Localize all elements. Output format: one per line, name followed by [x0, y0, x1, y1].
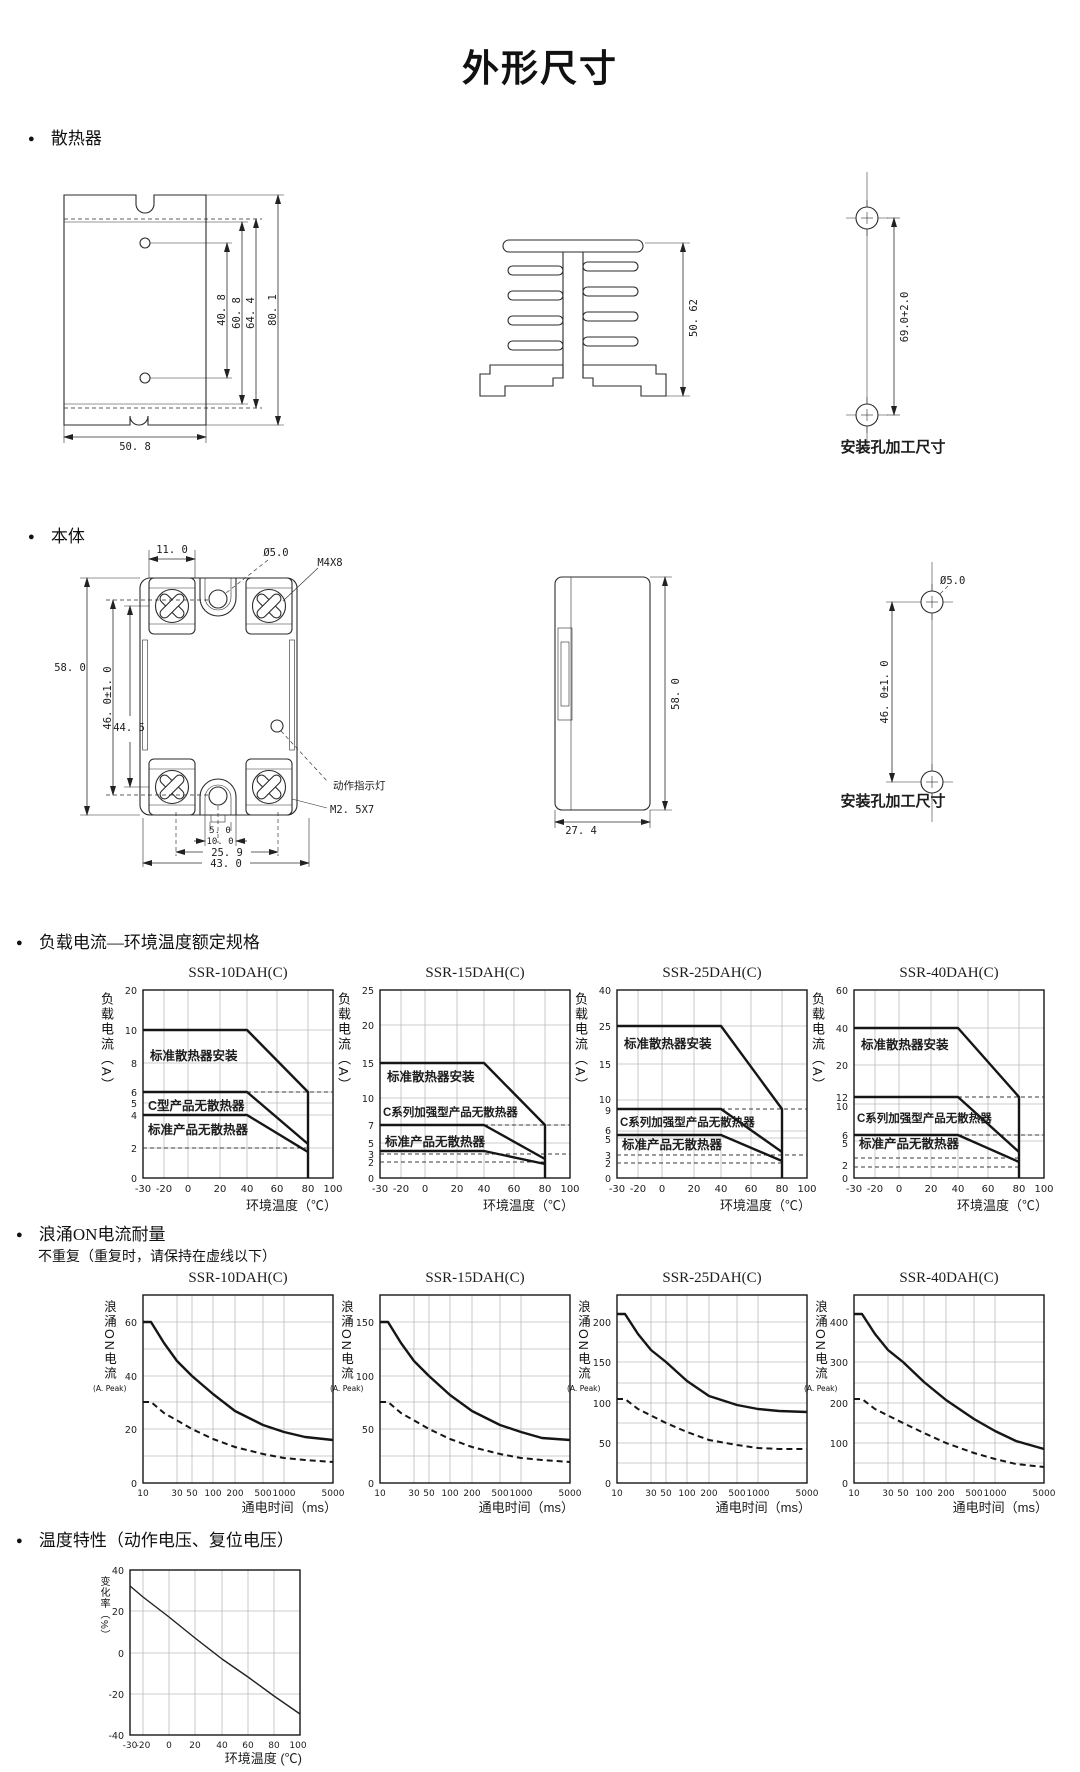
y-tick: 10 — [836, 1102, 848, 1113]
x-tick: 20 — [451, 1184, 464, 1195]
x-tick: 100 — [797, 1184, 816, 1195]
y-tick: 2 — [605, 1159, 611, 1170]
series-label: 标准散热器安装 — [386, 1069, 475, 1084]
surge-chart-ssr-25dah: SSR-25DAH(C) 200 150 100 50 0 10 30 50 1… — [593, 1270, 819, 1515]
y-tick: 25 — [599, 1022, 611, 1033]
series-label: 标准散热器安装 — [623, 1036, 712, 1051]
y-axis-label: 负载电流（A） — [334, 992, 353, 1093]
y-tick: 5 — [131, 1099, 137, 1110]
x-tick: 100 — [323, 1184, 342, 1195]
y-tick: 100 — [356, 1372, 374, 1383]
x-tick: 10 — [848, 1489, 860, 1499]
y-axis-label: 浪涌ON电流 — [337, 1300, 356, 1381]
x-tick: 50 — [186, 1489, 198, 1499]
y-tick: 20 — [125, 1425, 137, 1436]
x-axis-label: 环境温度（℃） — [246, 1198, 337, 1213]
x-tick: 1000 — [273, 1489, 296, 1499]
dim-body-hole-dia: Ø5.0 — [940, 575, 965, 587]
x-tick: -20 — [156, 1184, 172, 1195]
y-tick: 0 — [118, 1649, 124, 1660]
y-axis-label: 负载电流（A） — [97, 992, 116, 1093]
x-tick: 60 — [982, 1184, 995, 1195]
led-indicator — [271, 720, 283, 732]
label-led: 动作指示灯 — [333, 779, 386, 792]
body-holes-caption: 安装孔加工尺寸 — [840, 792, 945, 810]
y-tick: 200 — [593, 1318, 611, 1329]
y-tick: 15 — [362, 1059, 374, 1070]
x-tick: 80 — [776, 1184, 789, 1195]
x-tick: 1000 — [747, 1489, 770, 1499]
y-axis-label: 变化率（%） — [96, 1576, 111, 1641]
y-tick: 50 — [362, 1425, 374, 1436]
x-axis-label: 环境温度 (℃) — [225, 1751, 302, 1766]
y-tick: 10 — [362, 1094, 374, 1105]
x-axis-label: 通电时间（ms） — [242, 1500, 337, 1515]
x-tick: 100 — [678, 1489, 695, 1499]
dim-60-8: 60. 8 — [231, 297, 243, 329]
x-tick: 200 — [463, 1489, 480, 1499]
y-tick: -20 — [108, 1690, 124, 1701]
x-tick: 50 — [660, 1489, 672, 1499]
x-tick: 1000 — [510, 1489, 533, 1499]
y-tick: 5 — [842, 1139, 848, 1150]
x-tick: 20 — [688, 1184, 701, 1195]
section-heading-body: 本体 — [28, 522, 85, 547]
x-tick: 500 — [965, 1489, 982, 1499]
x-tick: 5000 — [1033, 1489, 1056, 1499]
y-tick: 9 — [605, 1106, 611, 1117]
dim-64-4: 64. 4 — [245, 297, 257, 329]
series-label: C系列加强型产品无散热器 — [383, 1105, 518, 1119]
y-tick: 40 — [125, 1372, 137, 1383]
y-tick: 300 — [830, 1358, 848, 1369]
dim-69-0: 69.0+2.0 — [899, 292, 911, 343]
x-tick: 30 — [171, 1489, 183, 1499]
x-tick: 5000 — [322, 1489, 345, 1499]
dim-11-0: 11. 0 — [156, 544, 188, 556]
y-tick: 40 — [599, 986, 611, 997]
chart-title: SSR-10DAH(C) — [188, 1270, 287, 1286]
technical-drawing-layer: 40. 8 60. 8 64. 4 80. 1 50. 8 50. 62 — [0, 0, 1080, 1772]
label-m2-5x7: M2. 5X7 — [330, 804, 374, 816]
chart-title: SSR-40DAH(C) — [899, 965, 998, 981]
x-tick: 30 — [882, 1489, 894, 1499]
x-tick: -30 — [372, 1184, 388, 1195]
body-mounting-holes: Ø5.0 46. 0±1. 0 安装孔加工尺寸 — [840, 562, 965, 822]
y-tick: 20 — [125, 986, 137, 997]
x-tick: 60 — [242, 1741, 254, 1751]
x-tick: 200 — [937, 1489, 954, 1499]
y-axis-unit: (A. Peak) — [93, 1384, 139, 1393]
series-label: 标准产品无散热器 — [621, 1137, 723, 1152]
x-tick: 100 — [1034, 1184, 1053, 1195]
dim-5-0: 5. 0 — [209, 826, 231, 836]
y-tick: 4 — [131, 1111, 137, 1122]
x-tick: 500 — [728, 1489, 745, 1499]
x-tick: -20 — [393, 1184, 409, 1195]
x-tick: 500 — [254, 1489, 271, 1499]
y-tick: 2 — [368, 1158, 374, 1169]
x-tick: 100 — [441, 1489, 458, 1499]
load-chart-ssr-25dah: SSR-25DAH(C) 40 25 15 10 9 6 5 3 2 0 -30… — [599, 965, 817, 1213]
x-tick: 80 — [539, 1184, 552, 1195]
x-tick: 30 — [645, 1489, 657, 1499]
dim-50-8: 50. 8 — [119, 441, 151, 453]
x-tick: 200 — [700, 1489, 717, 1499]
x-axis-label: 环境温度（℃） — [957, 1198, 1048, 1213]
x-tick: 100 — [560, 1184, 579, 1195]
x-tick: -20 — [630, 1184, 646, 1195]
x-tick: 200 — [226, 1489, 243, 1499]
x-tick: 1000 — [984, 1489, 1007, 1499]
y-tick: 40 — [112, 1566, 124, 1577]
x-tick: 100 — [204, 1489, 221, 1499]
section-heading-label: 温度特性（动作电压、复位电压） — [39, 1531, 294, 1550]
y-tick: 100 — [593, 1399, 611, 1410]
series-label: C系列加强型产品无散热器 — [620, 1115, 755, 1129]
body-front-view: 11. 0 Ø5.0 M4X8 58. 0 46. 0±1. 0 44. 5 动… — [54, 544, 386, 870]
x-tick: 10 — [137, 1489, 149, 1499]
x-tick: -30 — [846, 1184, 862, 1195]
load-chart-ssr-15dah: SSR-15DAH(C) 25 20 15 10 7 5 3 2 0 -30 -… — [362, 965, 580, 1213]
y-tick: 60 — [836, 986, 848, 997]
page-title: 外形尺寸 — [0, 38, 1080, 92]
dim-body-46-0: 46. 0±1. 0 — [879, 660, 891, 723]
section-heading-surge: 浪涌ON电流耐量 — [16, 1220, 165, 1245]
x-tick: 50 — [423, 1489, 435, 1499]
x-tick: 40 — [952, 1184, 965, 1195]
section-heading-load: 负载电流—环境温度额定规格 — [16, 928, 260, 953]
load-chart-ssr-40dah: SSR-40DAH(C) 60 40 20 12 10 6 5 2 0 -30 … — [836, 965, 1054, 1213]
x-tick: 0 — [659, 1184, 665, 1195]
series-label: 标准产品无散热器 — [858, 1136, 960, 1151]
x-tick: 60 — [508, 1184, 521, 1195]
datasheet-page: 40. 8 60. 8 64. 4 80. 1 50. 8 50. 62 — [0, 0, 1080, 1772]
x-tick: 40 — [715, 1184, 728, 1195]
y-tick: 50 — [599, 1439, 611, 1450]
y-tick: 20 — [836, 1061, 848, 1072]
y-axis-unit: (A. Peak) — [330, 1384, 376, 1393]
x-tick: 0 — [166, 1741, 172, 1751]
y-tick: 0 — [605, 1479, 611, 1490]
load-chart-ssr-10dah: SSR-10DAH(C) 20 10 8 6 5 4 2 0 -30 -20 0… — [125, 965, 343, 1213]
y-tick: 0 — [368, 1479, 374, 1490]
y-tick: 2 — [131, 1144, 137, 1155]
body-side-view: 58. 0 27. 4 — [555, 577, 682, 837]
x-tick: 100 — [915, 1489, 932, 1499]
x-axis-label: 通电时间（ms） — [716, 1500, 811, 1515]
y-axis-label: 负载电流（A） — [571, 992, 590, 1093]
chart-title: SSR-25DAH(C) — [662, 965, 761, 981]
y-tick: 5 — [605, 1135, 611, 1146]
temp-characteristic-chart: 40 20 0 -20 -40 -30 -20 0 20 40 60 80 10… — [108, 1566, 306, 1766]
y-tick: 6 — [131, 1088, 137, 1099]
y-tick: 150 — [593, 1358, 611, 1369]
dim-80-1: 80. 1 — [267, 294, 279, 326]
x-tick: 0 — [185, 1184, 191, 1195]
x-tick: 10 — [611, 1489, 623, 1499]
y-tick: 40 — [836, 1024, 848, 1035]
series-label: 标准产品无散热器 — [147, 1122, 249, 1137]
x-tick: 60 — [745, 1184, 758, 1195]
x-tick: 5000 — [796, 1489, 819, 1499]
x-tick: 20 — [189, 1741, 201, 1751]
y-tick: 200 — [830, 1399, 848, 1410]
y-tick: 15 — [599, 1060, 611, 1071]
heatsink-holes-caption: 安装孔加工尺寸 — [840, 438, 945, 456]
x-tick: -20 — [867, 1184, 883, 1195]
y-axis-unit: (A. Peak) — [567, 1384, 613, 1393]
dim-43-0: 43. 0 — [210, 858, 242, 870]
x-tick: -30 — [609, 1184, 625, 1195]
y-tick: 10 — [125, 1026, 137, 1037]
y-tick: 20 — [112, 1607, 124, 1618]
y-tick: 60 — [125, 1318, 137, 1329]
x-tick: 0 — [422, 1184, 428, 1195]
x-tick: 40 — [216, 1741, 228, 1751]
x-tick: 80 — [302, 1184, 315, 1195]
x-axis-label: 环境温度（℃） — [483, 1198, 574, 1213]
x-tick: 20 — [214, 1184, 227, 1195]
y-tick: 100 — [830, 1439, 848, 1450]
section-heading-label: 浪涌ON电流耐量 — [39, 1225, 166, 1244]
y-tick: 8 — [131, 1059, 137, 1070]
y-tick: 2 — [842, 1161, 848, 1172]
x-tick: 20 — [925, 1184, 938, 1195]
y-tick: 5 — [368, 1139, 374, 1150]
x-tick: 10 — [374, 1489, 386, 1499]
chart-title: SSR-25DAH(C) — [662, 1270, 761, 1286]
dim-50-62: 50. 62 — [688, 299, 700, 337]
x-tick: -20 — [136, 1741, 151, 1751]
x-axis-label: 通电时间（ms） — [953, 1500, 1048, 1515]
dim-side-58: 58. 0 — [670, 678, 682, 710]
y-axis-unit: (A. Peak) — [804, 1384, 850, 1393]
surge-chart-ssr-10dah: SSR-10DAH(C) 60 40 20 0 10 30 50 100 200… — [125, 1270, 345, 1515]
x-tick: 80 — [1013, 1184, 1026, 1195]
series-label: C系列加强型产品无散热器 — [857, 1111, 992, 1125]
section-heading-label: 负载电流—环境温度额定规格 — [39, 933, 260, 952]
x-tick: 500 — [491, 1489, 508, 1499]
x-tick: 80 — [268, 1741, 280, 1751]
y-axis-label: 负载电流（A） — [808, 992, 827, 1093]
series-label: C型产品无散热器 — [148, 1098, 245, 1113]
dim-58-0: 58. 0 — [54, 662, 86, 674]
dim-40-8: 40. 8 — [216, 294, 228, 326]
y-tick: 10 — [599, 1095, 611, 1106]
surge-note: 不重复（重复时，请保持在虚线以下） — [38, 1246, 276, 1266]
y-tick: 150 — [356, 1318, 374, 1329]
section-heading-label: 本体 — [51, 527, 85, 546]
y-tick: 0 — [842, 1479, 848, 1490]
series-label: 标准散热器安装 — [860, 1037, 949, 1052]
x-tick: 30 — [408, 1489, 420, 1499]
heatsink-side-view: 50. 62 — [480, 240, 700, 396]
series-label: 标准散热器安装 — [149, 1048, 238, 1063]
x-tick: 40 — [241, 1184, 254, 1195]
dim-46-0: 46. 0±1. 0 — [102, 666, 114, 729]
series-label: 标准产品无散热器 — [384, 1134, 486, 1149]
y-tick: 25 — [362, 986, 374, 997]
x-tick: -30 — [135, 1184, 151, 1195]
y-tick: 20 — [362, 1021, 374, 1032]
x-tick: 40 — [478, 1184, 491, 1195]
section-heading-heatsink: 散热器 — [28, 124, 102, 149]
heatsink-front-view: 40. 8 60. 8 64. 4 80. 1 50. 8 — [64, 195, 284, 453]
dim-27-4: 27. 4 — [565, 825, 597, 837]
y-axis-label: 浪涌ON电流 — [574, 1300, 593, 1381]
dim-44-5: 44. 5 — [113, 722, 145, 734]
y-tick: 7 — [368, 1121, 374, 1132]
x-axis-label: 环境温度（℃） — [720, 1198, 811, 1213]
x-tick: 50 — [897, 1489, 909, 1499]
y-axis-label: 浪涌ON电流 — [811, 1300, 830, 1381]
x-tick: 5000 — [559, 1489, 582, 1499]
heatsink-mounting-holes: 69.0+2.0 安装孔加工尺寸 — [840, 172, 945, 456]
x-tick: 100 — [289, 1741, 306, 1751]
x-tick: 0 — [896, 1184, 902, 1195]
chart-title: SSR-10DAH(C) — [188, 965, 287, 981]
x-axis-label: 通电时间（ms） — [479, 1500, 574, 1515]
dim-10-0: 10. 0 — [206, 837, 233, 847]
x-tick: 60 — [271, 1184, 284, 1195]
chart-title: SSR-15DAH(C) — [425, 1270, 524, 1286]
chart-title: SSR-40DAH(C) — [899, 1270, 998, 1286]
dim-hole-dia: Ø5.0 — [263, 547, 288, 559]
label-m4x8: M4X8 — [317, 557, 342, 569]
surge-chart-ssr-40dah: SSR-40DAH(C) 400 300 200 100 0 10 30 50 … — [830, 1270, 1056, 1515]
y-axis-label: 浪涌ON电流 — [100, 1300, 119, 1381]
chart-title: SSR-15DAH(C) — [425, 965, 524, 981]
y-tick: 0 — [131, 1479, 137, 1490]
surge-chart-ssr-15dah: SSR-15DAH(C) 150 100 50 0 10 30 50 100 2… — [356, 1270, 582, 1515]
y-tick: 400 — [830, 1318, 848, 1329]
section-heading-label: 散热器 — [51, 129, 102, 148]
section-heading-temp: 温度特性（动作电压、复位电压） — [16, 1526, 294, 1551]
